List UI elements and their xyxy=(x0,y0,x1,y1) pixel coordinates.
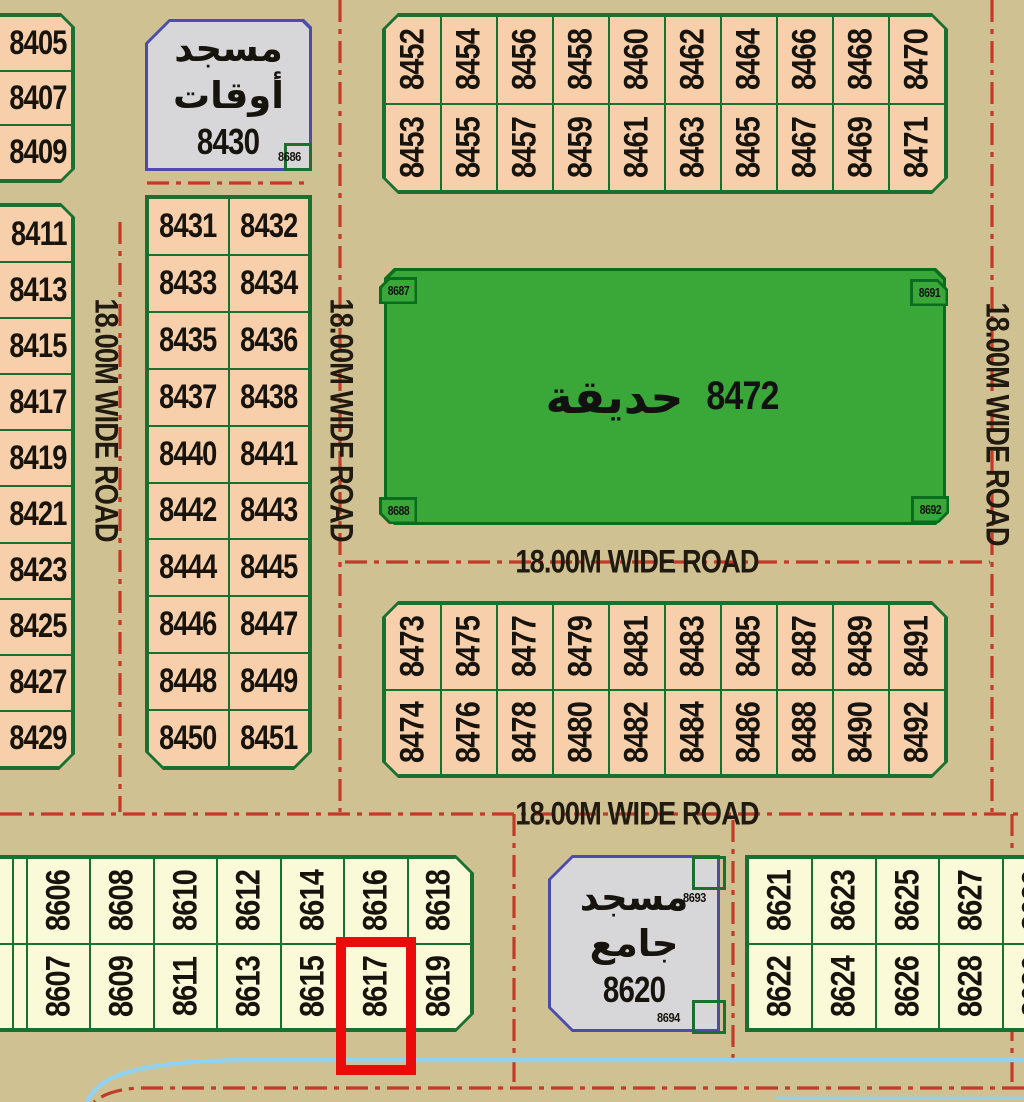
plot-8629[interactable]: 8629 xyxy=(1003,858,1024,944)
plot-number: 8461 xyxy=(618,117,657,178)
plot-number: 8445 xyxy=(240,548,297,587)
plot-8623[interactable]: 8623 xyxy=(812,858,876,944)
road-label-mid-horizontal: 18.00M WIDE ROAD xyxy=(515,544,758,581)
plot-number: 8608 xyxy=(103,870,142,931)
plot-8609[interactable]: 8609 xyxy=(90,944,153,1030)
plot-8411[interactable]: 8411 xyxy=(0,206,72,262)
plot-8627[interactable]: 8627 xyxy=(939,858,1003,944)
plot-number: 8616 xyxy=(356,870,395,931)
plot-number: 8425 xyxy=(10,607,71,646)
plot-number: 8470 xyxy=(898,29,937,90)
plot-number: 8491 xyxy=(898,616,937,677)
plot-8467[interactable]: 8467 xyxy=(777,104,833,192)
plot-8482[interactable]: 8482 xyxy=(609,690,665,776)
plot-8473[interactable]: 8473 xyxy=(385,604,441,690)
plot-number: 8630 xyxy=(1016,956,1024,1017)
plot-8475[interactable]: 8475 xyxy=(441,604,497,690)
plot-8612[interactable]: 8612 xyxy=(217,858,280,944)
plot-number: 8459 xyxy=(562,117,601,178)
plot-8628[interactable]: 8628 xyxy=(939,944,1003,1030)
plot-8613[interactable]: 8613 xyxy=(217,944,280,1030)
stream-line xyxy=(87,1060,1024,1102)
plot-8468[interactable]: 8468 xyxy=(833,16,889,104)
plot-8425[interactable]: 8425 xyxy=(0,599,72,655)
plot-number: 8629 xyxy=(1016,870,1024,931)
plot-8448[interactable]: 8448 xyxy=(148,653,229,710)
mosque-awqaf-name-line1: مسجد xyxy=(174,26,283,72)
plot-number: 8482 xyxy=(618,702,657,763)
plot-number: 8432 xyxy=(240,207,297,246)
mosque-jami-name-line1: مسجد xyxy=(580,875,689,921)
block-left-top: 840584078409 xyxy=(0,13,75,183)
plot-cell-cut[interactable] xyxy=(0,944,13,1030)
plot-8429[interactable]: 8429 xyxy=(0,711,72,767)
plot-number: 8490 xyxy=(842,702,881,763)
block-top-strip: 8452845484568458846084628464846684688470… xyxy=(382,13,948,194)
plot-8451[interactable]: 8451 xyxy=(229,710,310,767)
plot-8485[interactable]: 8485 xyxy=(721,604,777,690)
plot-number: 8443 xyxy=(240,491,297,530)
plot-8415[interactable]: 8415 xyxy=(0,318,72,374)
plot-number: 8628 xyxy=(952,956,991,1017)
plot-number: 8478 xyxy=(506,702,545,763)
road-label-right: 18.00M WIDE ROAD xyxy=(979,302,1016,545)
plot-8476[interactable]: 8476 xyxy=(441,690,497,776)
plot-8630[interactable]: 8630 xyxy=(1003,944,1024,1030)
plot-number: 8433 xyxy=(160,264,217,303)
plot-8606[interactable]: 8606 xyxy=(27,858,90,944)
plot-8453[interactable]: 8453 xyxy=(385,104,441,192)
plot-8423[interactable]: 8423 xyxy=(0,543,72,599)
plot-8456[interactable]: 8456 xyxy=(497,16,553,104)
plot-number: 8431 xyxy=(160,207,217,246)
plot-8434[interactable]: 8434 xyxy=(229,255,310,312)
plot-number: 8464 xyxy=(730,29,769,90)
plot-8489[interactable]: 8489 xyxy=(833,604,889,690)
plot-8488[interactable]: 8488 xyxy=(777,690,833,776)
plot-number: 8455 xyxy=(450,117,489,178)
park-corner-label-tr: 8691 xyxy=(918,285,940,300)
plot-8459[interactable]: 8459 xyxy=(553,104,609,192)
plot-number: 8488 xyxy=(786,702,825,763)
mosque-awqaf-name-line2: أوقات xyxy=(173,73,284,119)
plot-8449[interactable]: 8449 xyxy=(229,653,310,710)
plot-8693-label: 8693 xyxy=(683,890,706,905)
plot-8626[interactable]: 8626 xyxy=(876,944,940,1030)
plot-8477[interactable]: 8477 xyxy=(497,604,553,690)
plot-number: 8489 xyxy=(842,616,881,677)
plot-number: 8618 xyxy=(420,870,459,931)
plot-number: 8437 xyxy=(160,378,217,417)
plot-number: 8466 xyxy=(786,29,825,90)
plot-number: 8610 xyxy=(166,870,205,931)
plot-number: 8480 xyxy=(562,702,601,763)
plot-number: 8484 xyxy=(674,702,713,763)
plot-number: 8627 xyxy=(952,870,991,931)
park-corner-label-bl: 8688 xyxy=(387,503,409,518)
park-name: حديقة xyxy=(546,370,684,424)
plot-number: 8429 xyxy=(10,719,71,758)
mosque-jami-name-line2: جامع xyxy=(590,921,679,967)
plot-8686-label: 8686 xyxy=(278,149,301,164)
plot-number: 8476 xyxy=(450,702,489,763)
plot-number: 8417 xyxy=(10,383,71,422)
plot-8454[interactable]: 8454 xyxy=(441,16,497,104)
plot-number: 8492 xyxy=(898,702,937,763)
plot-number: 8614 xyxy=(293,870,332,931)
plot-map: 840584078409 841184138415841784198421842… xyxy=(0,0,1024,1102)
plot-8427[interactable]: 8427 xyxy=(0,655,72,711)
plot-number: 8474 xyxy=(394,702,433,763)
plot-8405[interactable]: 8405 xyxy=(0,16,72,71)
plot-8435[interactable]: 8435 xyxy=(148,312,229,369)
plot-8409[interactable]: 8409 xyxy=(0,125,72,180)
plot-8440[interactable]: 8440 xyxy=(148,426,229,483)
plot-8446[interactable]: 8446 xyxy=(148,596,229,653)
plot-8615[interactable]: 8615 xyxy=(281,944,344,1030)
plot-8481[interactable]: 8481 xyxy=(609,604,665,690)
plot-8484[interactable]: 8484 xyxy=(665,690,721,776)
plot-8432[interactable]: 8432 xyxy=(229,198,310,255)
plot-number: 8415 xyxy=(10,327,71,366)
plot-8443[interactable]: 8443 xyxy=(229,483,310,540)
plot-number: 8405 xyxy=(10,24,71,63)
plot-8437[interactable]: 8437 xyxy=(148,369,229,426)
plot-8458[interactable]: 8458 xyxy=(553,16,609,104)
plot-8431[interactable]: 8431 xyxy=(148,198,229,255)
plot-number: 8626 xyxy=(888,956,927,1017)
plot-8471[interactable]: 8471 xyxy=(889,104,945,192)
plot-8625[interactable]: 8625 xyxy=(876,858,940,944)
plot-number: 8435 xyxy=(160,321,217,360)
plot-number: 8453 xyxy=(394,117,433,178)
plot-number: 8413 xyxy=(10,271,71,310)
plot-8487[interactable]: 8487 xyxy=(777,604,833,690)
plot-number: 8421 xyxy=(10,495,71,534)
plot-number: 8611 xyxy=(166,957,205,1016)
plot-8462[interactable]: 8462 xyxy=(665,16,721,104)
plot-number: 8609 xyxy=(103,956,142,1017)
plot-8457[interactable]: 8457 xyxy=(497,104,553,192)
plot-8466[interactable]: 8466 xyxy=(777,16,833,104)
plot-number: 8607 xyxy=(39,956,78,1017)
plot-number: 8458 xyxy=(562,29,601,90)
plot-number: 8612 xyxy=(229,870,268,931)
plot-number: 8619 xyxy=(420,956,459,1017)
plot-number: 8441 xyxy=(240,435,297,474)
plot-8461[interactable]: 8461 xyxy=(609,104,665,192)
plot-8413[interactable]: 8413 xyxy=(0,262,72,318)
plot-number: 8440 xyxy=(160,435,217,474)
plot-cell-cut[interactable] xyxy=(13,944,27,1030)
plot-number: 8471 xyxy=(898,117,937,178)
road-label-middle: 18.00M WIDE ROAD xyxy=(323,298,360,541)
block-left-bottom: 8411841384158417841984218423842584278429 xyxy=(0,203,75,770)
road-label-left: 18.00M WIDE ROAD xyxy=(88,298,125,541)
plot-8445[interactable]: 8445 xyxy=(229,539,310,596)
block-mid-strip: 8473847584778479848184838485848784898491… xyxy=(382,601,948,778)
plot-8447[interactable]: 8447 xyxy=(229,596,310,653)
plot-number: 8450 xyxy=(160,719,217,758)
mid-strip-rows: 8473847584778479848184838485848784898491… xyxy=(385,604,945,775)
plot-number: 8460 xyxy=(618,29,657,90)
plot-8693-square[interactable] xyxy=(692,856,726,890)
plot-number: 8615 xyxy=(293,956,332,1017)
plot-8419[interactable]: 8419 xyxy=(0,430,72,486)
plot-number: 8423 xyxy=(10,551,71,590)
plot-number: 8452 xyxy=(394,29,433,90)
plot-8486[interactable]: 8486 xyxy=(721,690,777,776)
plot-number: 8448 xyxy=(160,662,217,701)
plot-number: 8436 xyxy=(240,321,297,360)
plot-8450[interactable]: 8450 xyxy=(148,710,229,767)
plot-number: 8469 xyxy=(842,117,881,178)
plot-number: 8486 xyxy=(730,702,769,763)
bottom-right-rows: 86218623862586278629 8622862486268628863… xyxy=(748,858,1024,1029)
plot-8460[interactable]: 8460 xyxy=(609,16,665,104)
plot-number: 8444 xyxy=(160,548,217,587)
park-corner-label-br: 8692 xyxy=(919,502,941,517)
block-mid-column: 84318432 84338434 84358436 84378438 8440… xyxy=(145,195,312,770)
plot-8616[interactable]: 8616 xyxy=(344,858,407,944)
plot-8490[interactable]: 8490 xyxy=(833,690,889,776)
plot-number: 8465 xyxy=(730,117,769,178)
plot-8611[interactable]: 8611 xyxy=(154,944,217,1030)
plot-number: 8449 xyxy=(240,662,297,701)
plot-number: 8447 xyxy=(240,605,297,644)
plot-number: 8479 xyxy=(562,616,601,677)
plot-number: 8477 xyxy=(506,616,545,677)
top-strip-rows: 8452845484568458846084628464846684688470… xyxy=(385,16,945,191)
plot-8464[interactable]: 8464 xyxy=(721,16,777,104)
mid-column-rows: 84318432 84338434 84358436 84378438 8440… xyxy=(148,198,309,767)
plot-8441[interactable]: 8441 xyxy=(229,426,310,483)
plot-number: 8462 xyxy=(674,29,713,90)
plot-number: 8483 xyxy=(674,616,713,677)
plot-number: 8623 xyxy=(824,870,863,931)
plot-number: 8606 xyxy=(39,870,78,931)
plot-8465[interactable]: 8465 xyxy=(721,104,777,192)
plot-8407[interactable]: 8407 xyxy=(0,71,72,126)
plot-number: 8463 xyxy=(674,117,713,178)
plot-8463[interactable]: 8463 xyxy=(665,104,721,192)
plot-number: 8451 xyxy=(240,719,297,758)
plot-number: 8409 xyxy=(10,133,71,172)
plot-8610[interactable]: 8610 xyxy=(154,858,217,944)
plot-8452[interactable]: 8452 xyxy=(385,16,441,104)
plot-number: 8407 xyxy=(10,79,71,118)
highlight-box-8617 xyxy=(336,937,416,1075)
plot-8470[interactable]: 8470 xyxy=(889,16,945,104)
plot-8478[interactable]: 8478 xyxy=(497,690,553,776)
plot-number: 8427 xyxy=(10,663,71,702)
mosque-jami-number: 8620 xyxy=(603,967,665,1012)
plot-8491[interactable]: 8491 xyxy=(889,604,945,690)
plot-8619[interactable]: 8619 xyxy=(408,944,471,1030)
plot-number: 8457 xyxy=(506,117,545,178)
plot-8483[interactable]: 8483 xyxy=(665,604,721,690)
plot-8694-square[interactable] xyxy=(692,1000,726,1034)
plot-8474[interactable]: 8474 xyxy=(385,690,441,776)
plot-number: 8456 xyxy=(506,29,545,90)
plot-cell-cut[interactable] xyxy=(0,858,13,944)
plot-8433[interactable]: 8433 xyxy=(148,255,229,312)
plot-number: 8454 xyxy=(450,29,489,90)
plot-number: 8438 xyxy=(240,378,297,417)
plot-number: 8468 xyxy=(842,29,881,90)
plot-8421[interactable]: 8421 xyxy=(0,486,72,542)
plot-8469[interactable]: 8469 xyxy=(833,104,889,192)
plot-number: 8625 xyxy=(888,870,927,931)
park-corner-label-tl: 8687 xyxy=(387,283,409,298)
plot-8455[interactable]: 8455 xyxy=(441,104,497,192)
plot-8607[interactable]: 8607 xyxy=(27,944,90,1030)
plot-number: 8419 xyxy=(10,439,71,478)
plot-8608[interactable]: 8608 xyxy=(90,858,153,944)
road-line-bottom-horizontal xyxy=(94,1088,1024,1102)
plot-8436[interactable]: 8436 xyxy=(229,312,310,369)
plot-number: 8624 xyxy=(824,956,863,1017)
plot-number: 8434 xyxy=(240,264,297,303)
plot-number: 8613 xyxy=(229,956,268,1017)
road-label-lower-horizontal: 18.00M WIDE ROAD xyxy=(515,796,758,833)
plot-number: 8485 xyxy=(730,616,769,677)
plot-8444[interactable]: 8444 xyxy=(148,539,229,596)
plot-number: 8621 xyxy=(760,870,799,931)
mosque-awqaf-number: 8430 xyxy=(197,119,259,164)
plot-8492[interactable]: 8492 xyxy=(889,690,945,776)
park-number: 8472 xyxy=(706,374,778,419)
plot-8417[interactable]: 8417 xyxy=(0,374,72,430)
plot-number: 8622 xyxy=(760,956,799,1017)
plot-number: 8446 xyxy=(160,605,217,644)
block-bottom-right: 86218623862586278629 8622862486268628863… xyxy=(745,855,1024,1032)
plot-8438[interactable]: 8438 xyxy=(229,369,310,426)
plot-8622[interactable]: 8622 xyxy=(748,944,812,1030)
plot-number: 8481 xyxy=(618,616,657,677)
plot-8694-label: 8694 xyxy=(657,1010,680,1025)
plot-8624[interactable]: 8624 xyxy=(812,944,876,1030)
plot-8621[interactable]: 8621 xyxy=(748,858,812,944)
plot-8442[interactable]: 8442 xyxy=(148,483,229,540)
park-block[interactable]: حديقة 8472 xyxy=(384,268,946,525)
plot-number: 8442 xyxy=(160,491,217,530)
plot-8480[interactable]: 8480 xyxy=(553,690,609,776)
plot-8614[interactable]: 8614 xyxy=(281,858,344,944)
plot-cell-cut[interactable] xyxy=(13,858,27,944)
plot-number: 8473 xyxy=(394,616,433,677)
plot-number: 8475 xyxy=(450,616,489,677)
plot-number: 8487 xyxy=(786,616,825,677)
plot-8479[interactable]: 8479 xyxy=(553,604,609,690)
plot-number: 8467 xyxy=(786,117,825,178)
plot-number: 8411 xyxy=(11,215,71,254)
plot-8618[interactable]: 8618 xyxy=(408,858,471,944)
